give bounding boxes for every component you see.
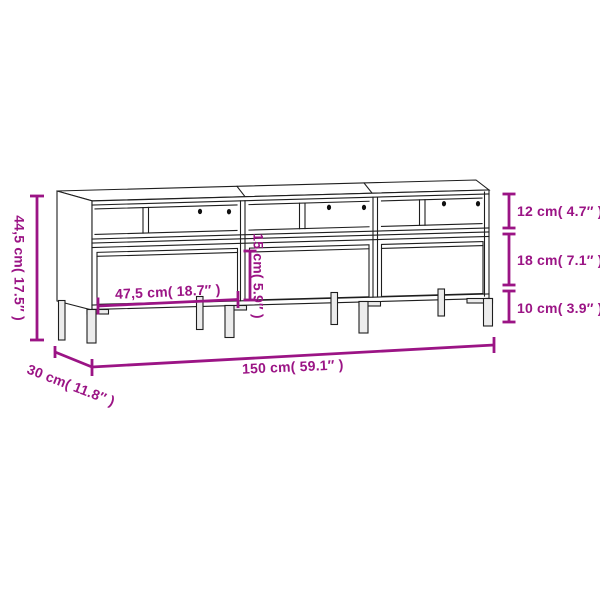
cabinet-left-side-panel xyxy=(57,191,92,310)
drawer-section-height-label: 18 cm( 7.1″ ) xyxy=(517,252,600,268)
compartment-height-label: 12 cm( 4.7″ ) xyxy=(517,203,600,219)
overall-height-label: 44,5 cm( 17.5″ ) xyxy=(12,215,28,321)
dimension-overall-width: 150 cm( 59.1″ ) xyxy=(92,337,494,377)
leg-front-right xyxy=(484,299,493,327)
leg-front-mid1 xyxy=(225,306,234,338)
dimension-drawer-section-height: 18 cm( 7.1″ ) xyxy=(503,234,600,285)
overall-width-label: 150 cm( 59.1″ ) xyxy=(242,356,344,376)
product-dimension-image: 44,5 cm( 17.5″ ) 12 cm( 4.7″ ) 18 cm( 7.… xyxy=(0,0,600,600)
leg-height-label: 10 cm( 3.9″ ) xyxy=(517,300,600,316)
leg-front-left xyxy=(87,310,96,344)
leg-back-left xyxy=(59,301,66,341)
dimension-diagram-svg: 44,5 cm( 17.5″ ) 12 cm( 4.7″ ) 18 cm( 7.… xyxy=(0,0,600,600)
dimension-compartment-height: 12 cm( 4.7″ ) xyxy=(503,194,600,228)
dimension-overall-height: 44,5 cm( 17.5″ ) xyxy=(12,196,45,340)
cabinet-drawing xyxy=(57,180,493,343)
dimension-leg-height: 10 cm( 3.9″ ) xyxy=(503,291,600,322)
depth-label: 30 cm( 11.8″ ) xyxy=(25,361,117,409)
leg-back-mid2 xyxy=(331,293,338,325)
drawer-front-3 xyxy=(382,242,484,297)
dimension-depth: 30 cm( 11.8″ ) xyxy=(25,346,117,409)
leg-back-right xyxy=(438,289,445,316)
drawer-front-height-label: 15 cm( 5.9″ ) xyxy=(251,233,267,319)
leg-front-mid2 xyxy=(359,302,368,334)
